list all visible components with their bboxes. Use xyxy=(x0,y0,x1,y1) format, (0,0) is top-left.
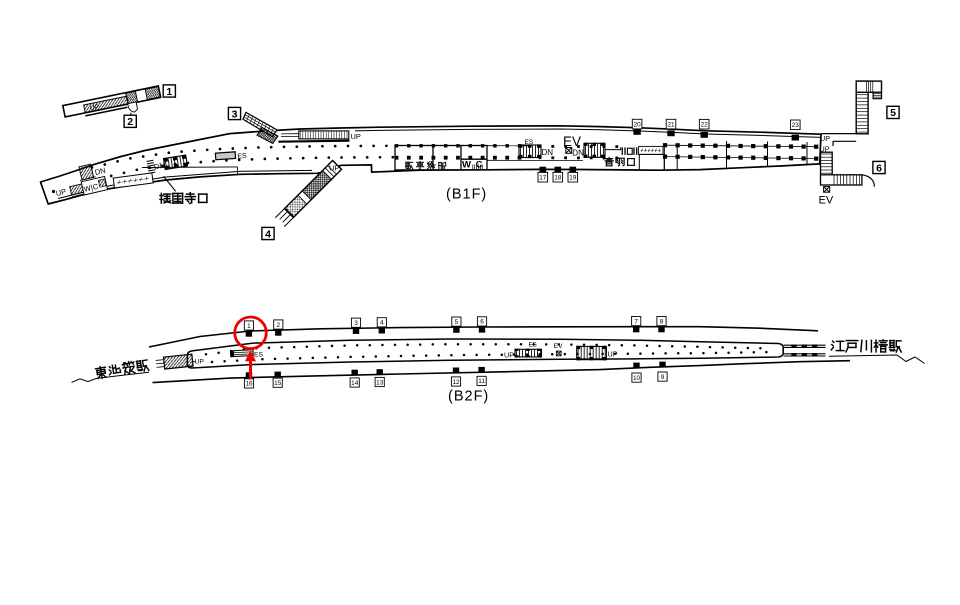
svg-text:UP: UP xyxy=(504,350,514,359)
svg-text:21: 21 xyxy=(667,121,675,128)
svg-text:UP: UP xyxy=(351,132,361,141)
svg-text:DN: DN xyxy=(542,148,554,157)
svg-text:10: 10 xyxy=(633,375,641,382)
svg-text:5: 5 xyxy=(455,319,459,326)
svg-text:UP: UP xyxy=(608,350,618,359)
svg-text:1: 1 xyxy=(247,323,251,330)
svg-text:2: 2 xyxy=(127,116,133,128)
svg-text:18: 18 xyxy=(554,175,562,182)
svg-text:8: 8 xyxy=(660,318,664,325)
svg-text:7: 7 xyxy=(634,318,638,325)
svg-text:5: 5 xyxy=(890,107,896,119)
svg-text:(B2F): (B2F) xyxy=(448,389,489,405)
svg-text:2: 2 xyxy=(277,322,281,329)
svg-text:6: 6 xyxy=(876,162,882,174)
svg-text:UP: UP xyxy=(195,359,205,366)
svg-text:UP: UP xyxy=(329,164,339,173)
svg-text:15: 15 xyxy=(274,380,282,387)
svg-text:4: 4 xyxy=(380,320,384,327)
svg-text:22: 22 xyxy=(701,122,709,129)
svg-text:23: 23 xyxy=(792,122,800,129)
svg-text:17: 17 xyxy=(539,175,547,182)
svg-text:12: 12 xyxy=(452,379,460,386)
svg-text:EV: EV xyxy=(819,195,834,207)
svg-text:3: 3 xyxy=(354,320,358,327)
svg-text:9: 9 xyxy=(661,374,665,381)
svg-text:(B1F): (B1F) xyxy=(446,187,487,203)
svg-text:14: 14 xyxy=(351,380,359,387)
svg-text:DN: DN xyxy=(572,148,584,157)
svg-text:11: 11 xyxy=(478,378,485,385)
svg-text:UP: UP xyxy=(820,134,830,143)
svg-text:ES: ES xyxy=(237,153,247,161)
svg-text:13: 13 xyxy=(376,379,384,386)
svg-text:UP: UP xyxy=(89,104,100,113)
svg-text:ES: ES xyxy=(529,341,537,348)
svg-text:EV: EV xyxy=(554,343,564,350)
svg-text:20: 20 xyxy=(634,121,642,128)
svg-text:3: 3 xyxy=(232,108,238,120)
svg-text:W C: W C xyxy=(462,160,483,171)
svg-text:19: 19 xyxy=(569,175,577,182)
svg-text:ES: ES xyxy=(254,352,264,359)
svg-text:ES: ES xyxy=(525,139,534,146)
svg-text:16: 16 xyxy=(245,381,253,388)
svg-text:6: 6 xyxy=(480,319,484,326)
svg-text:1: 1 xyxy=(166,86,172,98)
svg-text:EV: EV xyxy=(563,134,581,149)
svg-text:4: 4 xyxy=(265,228,271,240)
